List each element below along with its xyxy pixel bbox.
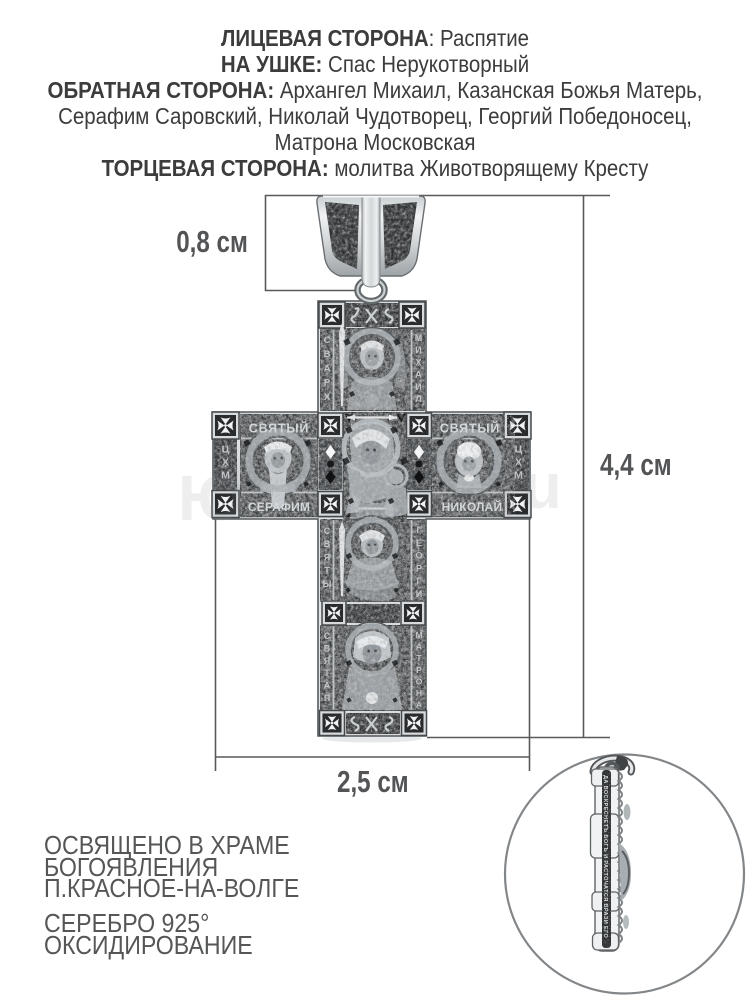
svg-text:Г: Г (416, 576, 421, 586)
svg-text:С: С (324, 526, 331, 536)
svg-text:М: М (415, 333, 423, 343)
svg-text:СЕРАФИМ: СЕРАФИМ (248, 500, 310, 514)
svg-text:Т: Т (416, 653, 422, 663)
svg-text:.ru: .ru (480, 450, 562, 522)
svg-text:И: И (415, 345, 421, 355)
svg-text:Ы: Ы (323, 579, 332, 589)
svg-text:И: И (416, 589, 422, 599)
svg-text:Ю: Ю (178, 462, 244, 534)
svg-text:А: А (324, 363, 331, 374)
svg-text:О: О (415, 551, 422, 561)
svg-text:В: В (324, 539, 331, 549)
svg-text:А: А (416, 642, 422, 652)
svg-text:И: И (415, 382, 421, 392)
svg-text:М: М (415, 630, 422, 640)
svg-text:Е: Е (416, 538, 422, 548)
svg-text:Т: Т (324, 668, 330, 678)
svg-text:Я: Я (324, 693, 330, 703)
svg-text:СВЯТЫЙ: СВЯТЫЙ (440, 421, 500, 436)
svg-text:Г: Г (416, 525, 421, 535)
svg-text:А: А (415, 370, 422, 380)
svg-text:Х: Х (415, 357, 421, 367)
svg-text:СВЯТЫЙ: СВЯТЫЙ (249, 421, 309, 436)
svg-text:В: В (324, 643, 331, 653)
svg-text:Р: Р (324, 378, 331, 389)
svg-text:А: А (416, 700, 422, 710)
svg-text:Т: Т (324, 566, 330, 576)
svg-text:Я: Я (324, 552, 330, 562)
svg-text:Ц: Ц (222, 444, 230, 456)
svg-text:ДА ВОСКРЕСНЕТЪ БОГЪ И РАСТОЧАТ: ДА ВОСКРЕСНЕТЪ БОГЪ И РАСТОЧАТСЯ ВРАЗИ Е… (602, 775, 608, 939)
svg-text:Р: Р (416, 563, 422, 573)
svg-text:Я: Я (324, 656, 330, 666)
svg-text:Н: Н (416, 688, 422, 698)
svg-text:Л: Л (415, 394, 421, 404)
svg-text:А: А (324, 681, 331, 691)
svg-text:С: С (324, 631, 331, 641)
svg-text:Х: Х (324, 392, 331, 403)
svg-text:В: В (324, 349, 331, 360)
svg-text:С: С (324, 335, 331, 346)
svg-text:Р: Р (416, 665, 422, 675)
svg-text:О: О (416, 676, 423, 686)
